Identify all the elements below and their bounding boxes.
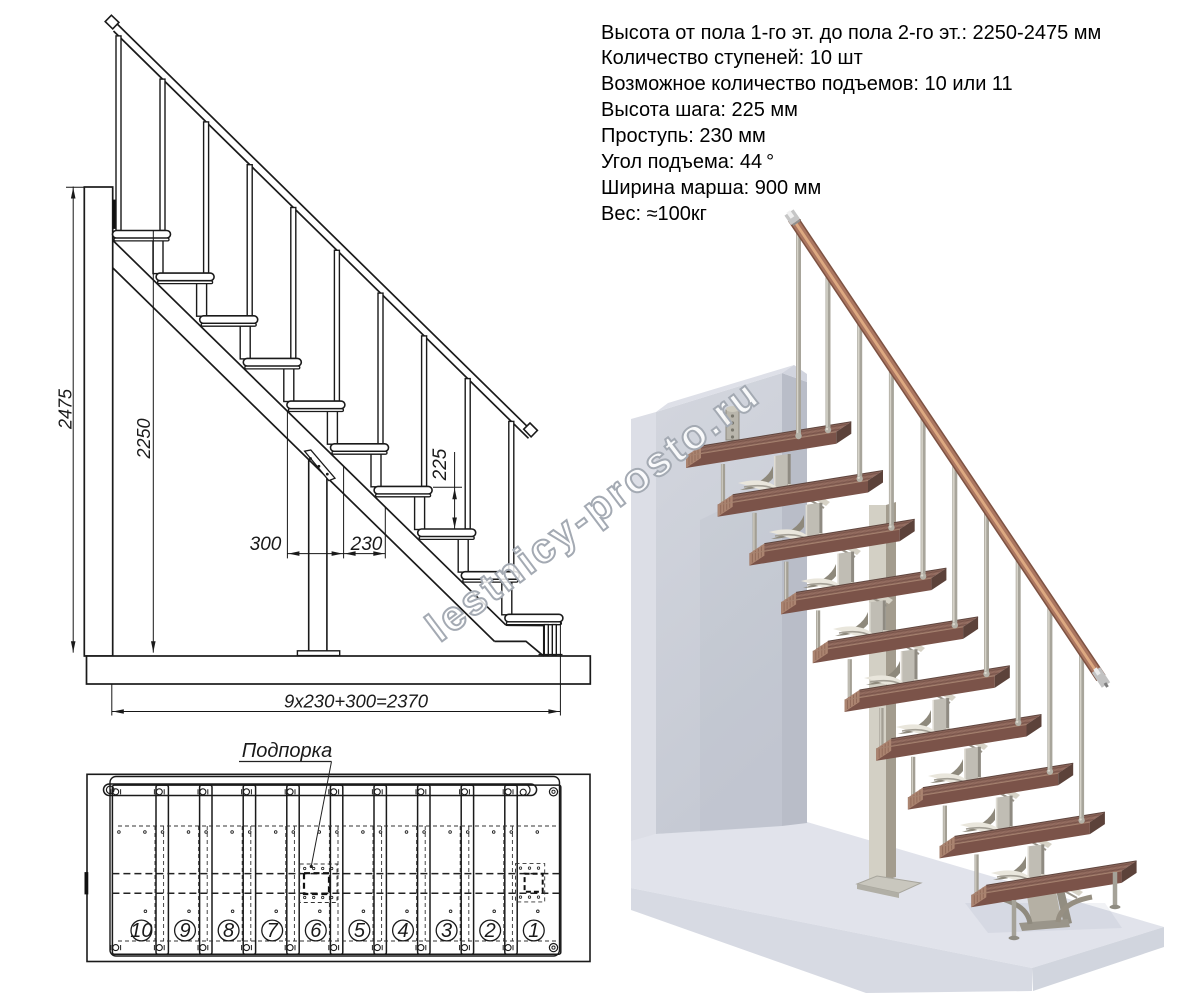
svg-text:6: 6 (310, 920, 322, 942)
svg-text:9: 9 (179, 920, 190, 942)
svg-text:4: 4 (397, 920, 408, 942)
svg-text:2250: 2250 (134, 418, 154, 459)
svg-text:3: 3 (441, 920, 452, 942)
svg-text:10: 10 (130, 920, 152, 942)
svg-text:225: 225 (430, 448, 451, 481)
svg-text:8: 8 (223, 920, 234, 942)
svg-text:1: 1 (528, 920, 539, 942)
svg-text:230: 230 (350, 534, 383, 555)
svg-text:300: 300 (250, 534, 282, 555)
svg-text:9x230+300=2370: 9x230+300=2370 (284, 691, 429, 712)
svg-text:2475: 2475 (55, 388, 75, 430)
svg-text:Подпорка: Подпорка (242, 740, 333, 762)
svg-text:5: 5 (354, 920, 366, 942)
svg-text:7: 7 (267, 920, 279, 942)
svg-text:2: 2 (484, 920, 496, 942)
